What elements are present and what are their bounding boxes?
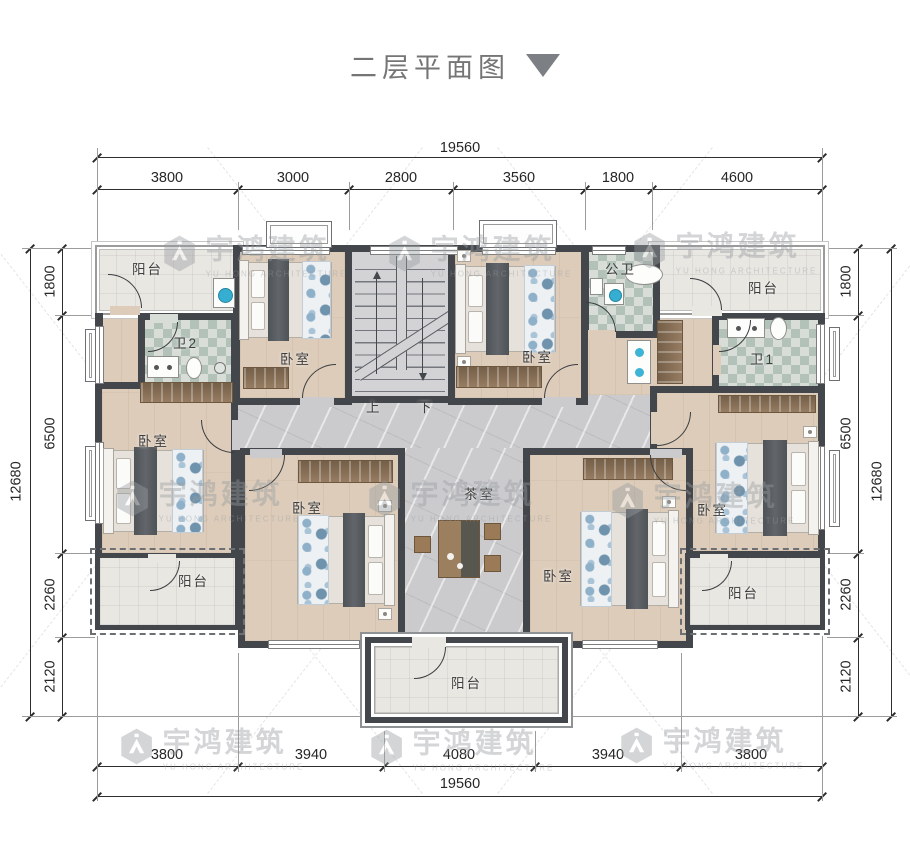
wardrobe: [456, 366, 542, 388]
dim-left-total: 12680: [9, 450, 24, 514]
hall-cabinet: [657, 320, 683, 384]
washing-machine: [604, 283, 624, 305]
label-balcony-top-left: 阳台: [132, 258, 163, 278]
label-public-bath: 公卫: [605, 258, 636, 278]
floor-plan-canvas: 二层平面图 19560 3800 3000 2800 3560 1800 460…: [0, 0, 910, 843]
wardrobe: [298, 460, 393, 483]
room-balcony-top-right: [652, 245, 825, 315]
chair: [484, 555, 501, 572]
dim-right-seg: 1800: [839, 250, 854, 314]
dim-top-seg: 3000: [261, 170, 325, 186]
window: [582, 640, 658, 649]
label-balcony-bottom-right: 阳台: [728, 582, 759, 602]
page-title-bar: 二层平面图: [0, 46, 910, 85]
bay-window: [85, 329, 96, 382]
label-stairs-down: 下: [418, 396, 432, 416]
window: [268, 640, 360, 649]
stair-arrow-down: [422, 278, 423, 374]
chair: [484, 523, 501, 540]
dim-left-seg: 6500: [43, 402, 58, 466]
washing-machine: [213, 278, 235, 308]
dim-bottom-seg: 3800: [719, 747, 783, 763]
dim-right-seg: 6500: [839, 402, 854, 466]
dim-top-total: 19560: [428, 140, 492, 156]
dim-right-seg: 2120: [839, 645, 854, 709]
label-bath2: 卫2: [173, 332, 198, 352]
dim-top-seg: 1800: [586, 170, 650, 186]
bay-window: [829, 327, 840, 381]
stair-arrow-up: [376, 278, 377, 374]
watermark: 宇鸿建筑YU HONG ARCHITECTURE: [120, 721, 305, 772]
dim-bottom-seg: 4080: [427, 747, 491, 763]
label-bedroom-left: 卧室: [138, 430, 169, 450]
tea-table: [438, 520, 480, 578]
dim-top-seg: 2800: [369, 170, 433, 186]
label-stairs-up: 上: [366, 396, 380, 416]
dim-bottom-seg: 3940: [576, 747, 640, 763]
window: [592, 246, 626, 255]
chair: [414, 536, 431, 553]
bed: [240, 262, 332, 338]
bay-window: [85, 446, 96, 521]
label-balcony-bottom-left: 阳台: [178, 570, 209, 590]
dim-top-seg: 3800: [135, 170, 199, 186]
nightstand: [378, 608, 392, 620]
nightstand: [378, 500, 392, 512]
dim-left-seg: 1800: [43, 250, 58, 314]
wardrobe: [243, 367, 289, 389]
dim-bottom-seg: 3940: [279, 747, 343, 763]
label-bedroom-bottom-left: 卧室: [292, 497, 323, 517]
bed: [580, 512, 678, 606]
bay-window: [829, 450, 840, 527]
toilet: [186, 357, 202, 379]
dim-bottom-total: 19560: [428, 776, 492, 792]
dim-right-total: 12680: [870, 450, 885, 514]
sink: [590, 278, 603, 295]
nightstand: [457, 250, 471, 262]
bed: [715, 443, 818, 533]
page-title: 二层平面图: [350, 46, 510, 85]
triangle-down-icon[interactable]: [526, 54, 560, 77]
dim-left-seg: 2260: [43, 563, 58, 627]
wardrobe: [140, 382, 233, 403]
wardrobe: [718, 395, 816, 413]
label-tea-room: 茶室: [464, 483, 495, 503]
bay-window: [266, 221, 332, 248]
vanity-sink: [147, 356, 179, 378]
label-bedroom-top-center: 卧室: [522, 346, 553, 366]
window: [370, 246, 458, 255]
nightstand: [803, 426, 817, 438]
nightstand: [662, 496, 676, 508]
label-bath1: 卫1: [750, 348, 775, 368]
dim-right-seg: 2260: [839, 563, 854, 627]
bed: [297, 516, 394, 604]
staircase: [345, 245, 455, 403]
dim-bottom-seg: 3800: [135, 747, 199, 763]
dim-top-seg: 3560: [487, 170, 551, 186]
label-balcony-bottom-center: 阳台: [451, 672, 482, 692]
shower-drain: [214, 362, 226, 374]
label-bedroom-bottom-right: 卧室: [543, 565, 574, 585]
label-bedroom-right: 卧室: [697, 499, 728, 519]
window: [816, 324, 825, 384]
bed: [456, 266, 556, 352]
dim-left-seg: 2120: [43, 645, 58, 709]
toilet: [770, 317, 787, 340]
dim-top-seg: 4600: [705, 170, 769, 186]
bed: [104, 450, 204, 532]
double-basin: [627, 340, 651, 384]
label-bedroom-top-left: 卧室: [280, 348, 311, 368]
bay-window: [479, 220, 557, 248]
label-balcony-top-right: 阳台: [748, 277, 779, 297]
window: [95, 326, 104, 384]
